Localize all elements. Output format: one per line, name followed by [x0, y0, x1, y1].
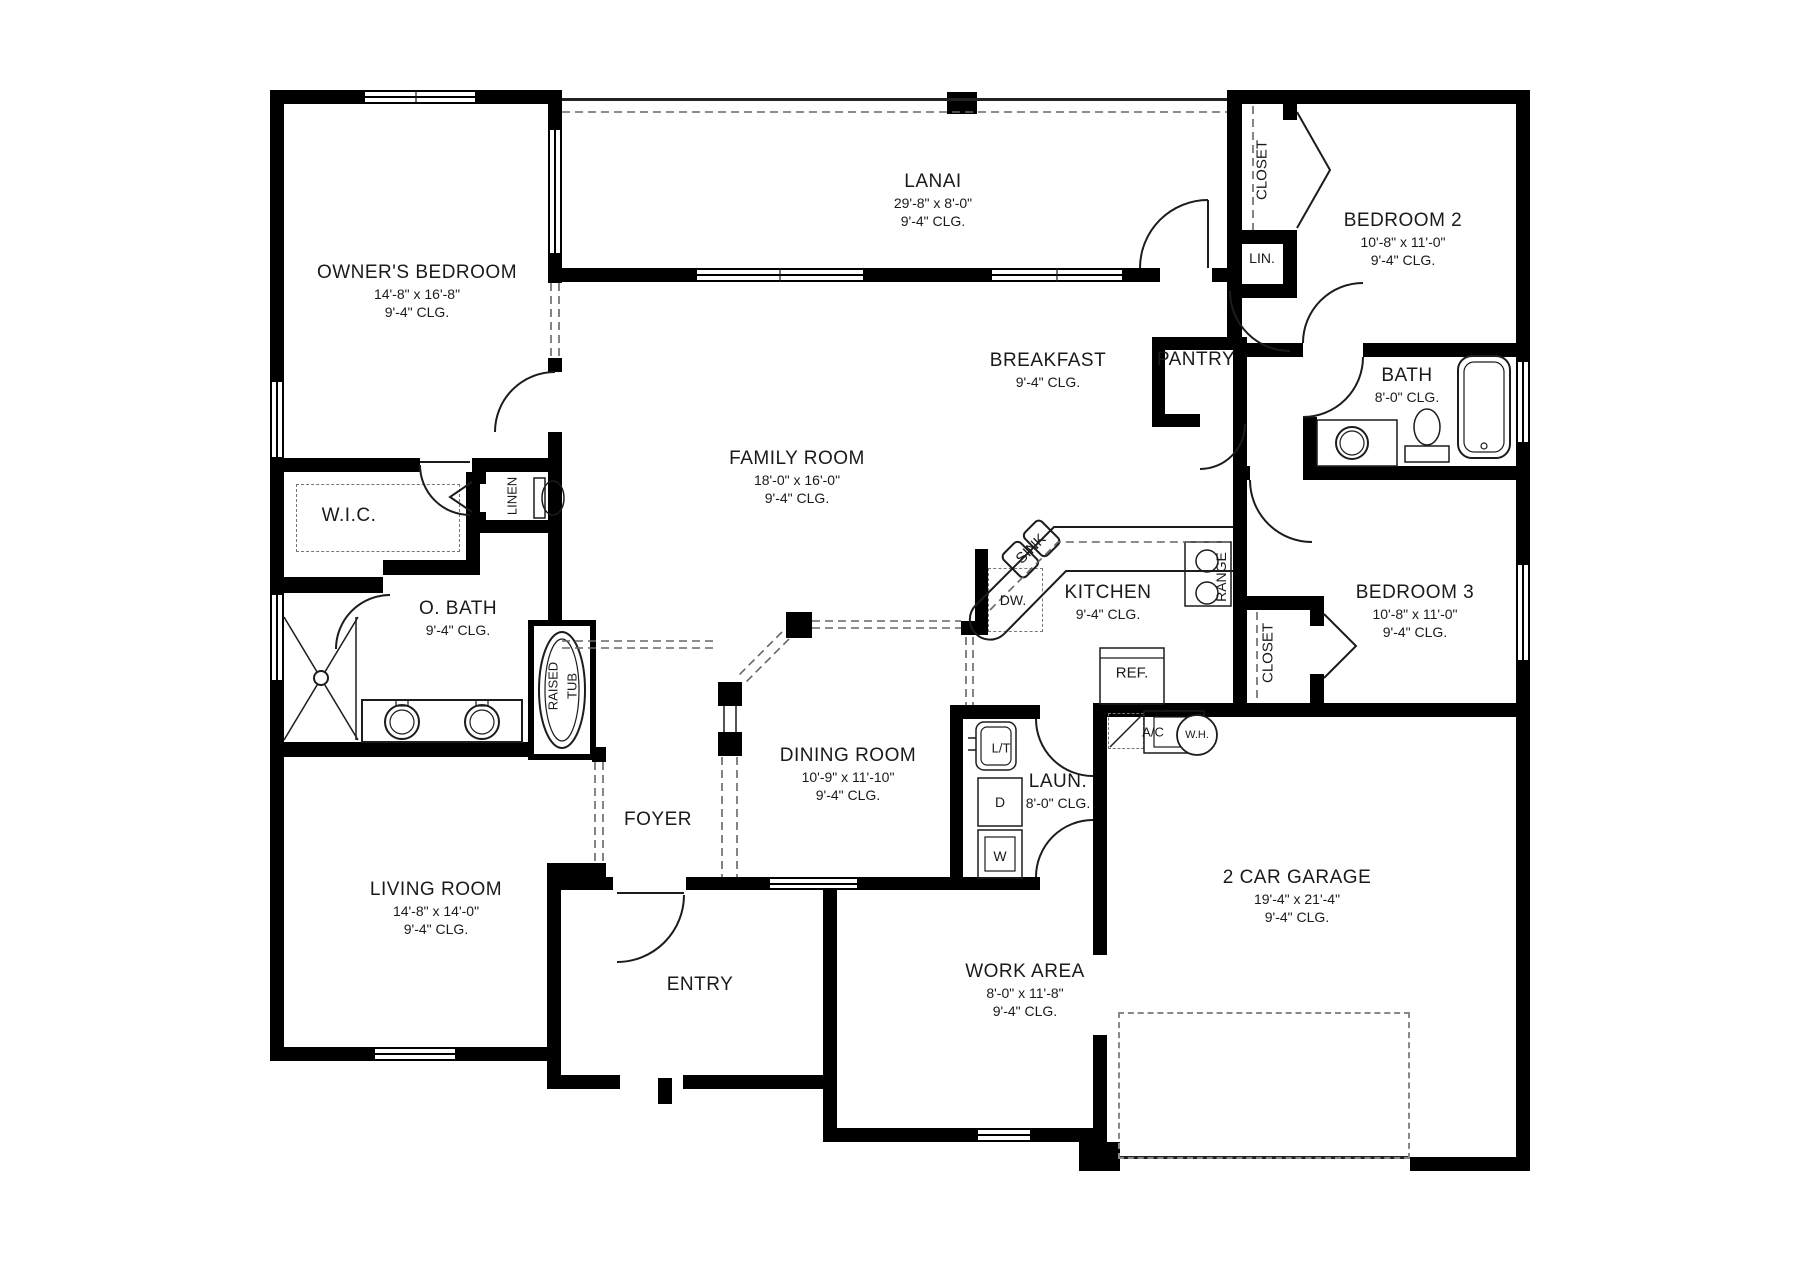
wall: [1516, 660, 1530, 1171]
room-dimension: 9'-4" CLG.: [385, 304, 449, 320]
door-arc-kitchen-laundry: [1036, 719, 1093, 776]
obath-sink-right: [465, 705, 499, 739]
window-interior: [770, 877, 857, 890]
room-name: BREAKFAST: [990, 350, 1106, 372]
obath-toilet-tank: [534, 478, 545, 518]
ac-pad-dashed: [1108, 713, 1144, 749]
wall-closet3: [1233, 596, 1324, 610]
wall-bedroom2: [1227, 104, 1242, 298]
wall-kitchen-right: [1233, 337, 1247, 703]
fixture-label-raised-tub-2: TUB: [565, 673, 580, 699]
obath-vanity-counter: [362, 700, 522, 742]
lanai-edge-line: [562, 98, 1227, 101]
door-arc-shower: [336, 595, 390, 649]
room-label-living-room: LIVING ROOM14'-8" x 14'-0"9'-4" CLG.: [370, 879, 502, 937]
room-dimension: 19'-4" x 21'-4": [1254, 891, 1340, 907]
bath-sink-bowl: [1340, 431, 1364, 455]
wall: [270, 680, 284, 1061]
wall-wic-right: [466, 472, 480, 560]
wall: [1410, 1157, 1530, 1171]
wall: [270, 1047, 375, 1061]
room-dimension: 8'-0" CLG.: [1375, 389, 1439, 405]
raised-tub-platform: [528, 620, 596, 760]
room-label-work-area: WORK AREA8'-0" x 11'-8"9'-4" CLG.: [965, 961, 1085, 1019]
wall-closet3: [1310, 610, 1324, 626]
wall: [1030, 1128, 1093, 1142]
wall-lanai: [1122, 268, 1160, 282]
fixture-label-ac-unit: A/C: [1142, 725, 1164, 740]
wall-wic-bottom: [270, 577, 383, 593]
fixture-label-laundry-tub: L/T: [992, 741, 1011, 756]
room-dimension: 9'-4" CLG.: [1383, 624, 1447, 640]
column: [786, 612, 812, 638]
wall: [472, 458, 562, 472]
room-label-bedroom-3: BEDROOM 310'-8" x 11'-0"9'-4" CLG.: [1356, 582, 1475, 640]
room-dimension: 18'-0" x 16'-0": [754, 472, 840, 488]
room-name: PANTRY: [1157, 349, 1235, 371]
room-label-wic: W.I.C.: [322, 505, 377, 527]
wall-wic-bottom: [383, 560, 480, 575]
wall-kitchen-stub: [961, 621, 988, 635]
wall-bath-bottom: [1312, 466, 1516, 480]
bath-tub-inner: [1464, 362, 1504, 452]
wall: [1363, 343, 1516, 357]
room-dimension: 9'-4" CLG.: [993, 1003, 1057, 1019]
column-connector: [724, 706, 736, 732]
room-dimension: 9'-4" CLG.: [765, 490, 829, 506]
lanai-roof-post: [947, 92, 977, 114]
kitchen-dashed: [966, 637, 973, 705]
wall-laundry: [963, 877, 1040, 890]
room-name: BATH: [1381, 365, 1432, 387]
fixture-label-raised-tub-1: RAISED: [546, 662, 561, 710]
room-name: DINING ROOM: [780, 745, 916, 767]
bath-vanity: [1317, 420, 1397, 466]
room-dimension: 10'-9" x 11'-10": [802, 769, 895, 785]
room-dimension: 9'-4" CLG.: [1371, 252, 1435, 268]
room-dimension: 14'-8" x 14'-0": [393, 903, 479, 919]
window: [548, 130, 562, 253]
wall: [1242, 284, 1297, 298]
fixture-label-refrigerator: REF.: [1116, 665, 1149, 682]
wall: [1283, 104, 1297, 120]
window: [978, 1128, 1030, 1142]
room-name: WORK AREA: [965, 961, 1085, 983]
fixture-label-dishwasher: DW.: [1000, 592, 1026, 608]
fixture-label-closet-bedroom3: CLOSET: [1260, 623, 1277, 683]
wall: [683, 1075, 837, 1089]
wall: [823, 1128, 978, 1142]
wall: [548, 90, 562, 130]
wall-wic-top: [270, 458, 420, 472]
laundry-tub-faucet: [968, 738, 976, 750]
room-dimension: 9'-4" CLG.: [404, 921, 468, 937]
shower-drain: [314, 671, 328, 685]
wall-entry-left: [547, 863, 561, 1089]
family-foyer-dashed: [551, 283, 559, 358]
wall-pantry: [1152, 414, 1200, 427]
window: [697, 268, 863, 282]
door-arc-lanai-breakfast: [1140, 200, 1208, 268]
wall-garage-left: [1093, 1035, 1107, 1142]
bath-toilet-bowl: [1414, 409, 1440, 445]
room-name: O. BATH: [419, 598, 497, 620]
wall-lanai: [863, 268, 992, 282]
wall: [270, 90, 366, 104]
room-dimension: 9'-4" CLG.: [901, 213, 965, 229]
room-label-dining-room: DINING ROOM10'-9" x 11'-10"9'-4" CLG.: [780, 745, 916, 803]
room-dimension: 9'-4" CLG.: [1076, 606, 1140, 622]
room-dimension: 8'-0" x 11'-8": [986, 985, 1063, 1001]
bifold-closet-bedroom2: [1297, 112, 1330, 228]
shower-x: [284, 617, 358, 740]
room-name: ENTRY: [667, 974, 734, 996]
room-label-kitchen: KITCHEN9'-4" CLG.: [1065, 582, 1152, 622]
obath-sink-right-bowl: [470, 710, 494, 734]
wall-garage-top: [1093, 703, 1530, 717]
bath-sink: [1336, 427, 1368, 459]
room-label-foyer: FOYER: [624, 809, 692, 831]
obath-faucet-right: [476, 700, 488, 706]
window: [365, 90, 475, 104]
room-dimension: 9'-4" CLG.: [1265, 909, 1329, 925]
room-label-garage: 2 CAR GARAGE19'-4" x 21'-4"9'-4" CLG.: [1223, 867, 1372, 925]
room-name: LIVING ROOM: [370, 879, 502, 901]
garage-door-dashed: [1118, 1012, 1410, 1159]
wall: [472, 520, 562, 533]
door-arc-laundry-workarea: [1036, 820, 1093, 877]
wall: [1516, 442, 1530, 565]
dining-dashed-bottom: [722, 757, 737, 877]
wall-entry-top: [561, 877, 613, 890]
window: [270, 595, 284, 680]
room-label-family-room: FAMILY ROOM18'-0" x 16'-0"9'-4" CLG.: [729, 448, 865, 506]
wall-work-area-left: [823, 890, 837, 1142]
room-label-entry: ENTRY: [667, 974, 734, 996]
bath-tub-drain: [1481, 443, 1487, 449]
wall: [1516, 90, 1530, 362]
wall: [1283, 244, 1297, 284]
room-label-lanai: LANAI29'-8" x 8'-0"9'-4" CLG.: [894, 171, 972, 229]
wall-laundry: [963, 705, 1040, 719]
window: [270, 382, 284, 457]
wall-closet3: [1310, 674, 1324, 703]
room-label-bath: BATH8'-0" CLG.: [1375, 365, 1439, 405]
wic-shelving-dashed: [296, 484, 460, 552]
wall: [455, 1047, 551, 1061]
room-name: FAMILY ROOM: [729, 448, 865, 470]
room-name: BEDROOM 2: [1344, 210, 1463, 232]
room-dimension: 10'-8" x 11'-0": [1372, 606, 1457, 622]
fixture-label-water-heater: W.H.: [1185, 729, 1209, 741]
wall: [270, 104, 284, 382]
wall: [547, 1075, 620, 1089]
room-label-breakfast: BREAKFAST9'-4" CLG.: [990, 350, 1106, 390]
wall-lanai: [548, 268, 697, 282]
room-dimension: 29'-8" x 8'-0": [894, 195, 972, 211]
room-label-bedroom-2: BEDROOM 210'-8" x 11'-0"9'-4" CLG.: [1344, 210, 1463, 268]
fixture-label-linen-closet-hall: LIN.: [1249, 250, 1275, 266]
window: [1516, 565, 1530, 660]
door-arc-foyer-entry: [617, 895, 684, 962]
room-name: W.I.C.: [322, 505, 377, 527]
bifold-closet-bedroom3: [1324, 614, 1356, 678]
room-label-o-bath: O. BATH9'-4" CLG.: [419, 598, 497, 638]
fixture-label-dryer: D: [995, 794, 1005, 810]
room-dimension: 8'-0" CLG.: [1026, 795, 1090, 811]
wall-entry-top: [857, 877, 963, 890]
wall: [1227, 90, 1530, 104]
room-label-pantry: PANTRY: [1157, 349, 1235, 371]
door-arc-bedroom2: [1303, 283, 1363, 343]
room-name: BEDROOM 3: [1356, 582, 1475, 604]
room-name: OWNER'S BEDROOM: [317, 262, 517, 284]
fixture-label-kitchen-sink: SINK: [1013, 531, 1050, 568]
room-name: KITCHEN: [1065, 582, 1152, 604]
wall: [1242, 230, 1297, 244]
window: [992, 268, 1122, 282]
window: [375, 1047, 455, 1061]
room-dimension: 14'-8" x 16'-8": [374, 286, 460, 302]
room-name: LANAI: [904, 171, 961, 193]
room-name: LAUN.: [1029, 771, 1087, 793]
bath-tub: [1458, 356, 1510, 458]
room-dimension: 10'-8" x 11'-0": [1360, 234, 1445, 250]
room-name: FOYER: [624, 809, 692, 831]
window: [1516, 362, 1530, 442]
obath-faucet-left: [396, 700, 408, 706]
living-opening-dashed: [595, 762, 603, 863]
wall: [1079, 1142, 1120, 1171]
dining-dashed-diag: [736, 632, 789, 685]
room-dimension: 9'-4" CLG.: [816, 787, 880, 803]
obath-sink-left: [385, 705, 419, 739]
door-arc-bath: [1303, 357, 1363, 417]
front-door-stub: [658, 1078, 672, 1104]
fixture-label-washer: W: [993, 848, 1006, 864]
column: [718, 682, 742, 706]
fixture-label-range: RANGE: [1213, 552, 1229, 602]
column: [718, 732, 742, 756]
wall: [270, 457, 284, 595]
room-dimension: 9'-4" CLG.: [1016, 374, 1080, 390]
room-label-owners-bedroom: OWNER'S BEDROOM14'-8" x 16'-8"9'-4" CLG.: [317, 262, 517, 320]
door-arc-owners-bedroom: [495, 372, 555, 432]
fixture-label-linen-obath: LINEN: [505, 477, 520, 515]
wall-living-top: [270, 742, 528, 757]
wall: [1242, 343, 1303, 357]
dining-dashed-top: [812, 621, 961, 628]
fixture-label-closet-bedroom2: CLOSET: [1254, 140, 1271, 200]
wall: [1227, 298, 1242, 337]
wall-garage-left: [1093, 717, 1107, 955]
bath-toilet-tank: [1405, 446, 1449, 462]
wall: [548, 358, 562, 372]
room-name: 2 CAR GARAGE: [1223, 867, 1372, 889]
door-arc-bedroom3: [1250, 480, 1312, 542]
wall-laundry: [950, 705, 963, 890]
obath-sink-left-bowl: [390, 710, 414, 734]
room-dimension: 9'-4" CLG.: [426, 622, 490, 638]
wall-entry-top: [686, 877, 770, 890]
room-label-laundry: LAUN.8'-0" CLG.: [1026, 771, 1090, 811]
floor-plan: OWNER'S BEDROOM14'-8" x 16'-8"9'-4" CLG.…: [0, 0, 1800, 1272]
